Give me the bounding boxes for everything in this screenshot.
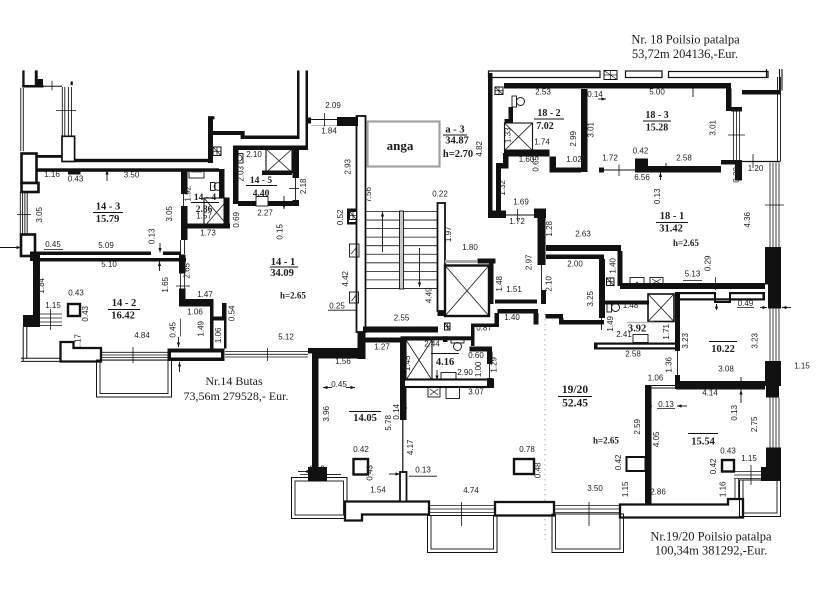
svg-text:2.00: 2.00 [567,259,583,268]
svg-text:0.43: 0.43 [81,305,90,321]
svg-text:1.49: 1.49 [606,315,615,331]
svg-text:4.82: 4.82 [475,140,484,156]
svg-text:2.10: 2.10 [545,275,554,291]
svg-text:0.48: 0.48 [534,462,543,478]
svg-text:14 - 2: 14 - 2 [112,298,137,309]
svg-text:1.16: 1.16 [719,481,728,497]
svg-text:2.93: 2.93 [344,158,353,174]
svg-text:3.25: 3.25 [586,290,595,306]
svg-text:3.05: 3.05 [35,206,44,222]
svg-text:1.57: 1.57 [196,211,212,220]
svg-text:0.29: 0.29 [704,255,713,271]
svg-text:1.45: 1.45 [403,355,412,371]
svg-text:0.87: 0.87 [476,323,492,332]
svg-text:15.79: 15.79 [96,214,120,225]
svg-text:15.28: 15.28 [646,123,669,134]
svg-text:1.47: 1.47 [197,290,213,299]
svg-text:4.36: 4.36 [743,211,752,227]
svg-text:14 - 3: 14 - 3 [96,202,121,213]
svg-text:Nr.19/20 Poilsio patalpa: Nr.19/20 Poilsio patalpa [650,530,772,544]
svg-text:1.71: 1.71 [662,323,671,339]
svg-text:14 - 5: 14 - 5 [250,176,272,186]
svg-text:1.80: 1.80 [462,243,478,252]
svg-text:0.13: 0.13 [730,404,739,420]
svg-text:18 - 1: 18 - 1 [660,211,685,222]
svg-text:1.32: 1.32 [498,179,507,195]
svg-text:anga: anga [387,138,414,153]
svg-text:1.49: 1.49 [197,320,206,336]
svg-text:14.05: 14.05 [353,413,377,424]
svg-text:1.56: 1.56 [335,357,351,366]
svg-text:1.84: 1.84 [321,126,337,135]
svg-text:1.16: 1.16 [44,170,60,179]
svg-text:1.84: 1.84 [37,277,46,293]
svg-text:0.13: 0.13 [415,465,431,474]
svg-text:0.54: 0.54 [228,305,237,321]
svg-text:2.59: 2.59 [633,418,642,434]
svg-text:14 - 1: 14 - 1 [271,257,296,268]
svg-text:1.20: 1.20 [748,164,764,173]
svg-text:2.65: 2.65 [183,262,192,278]
svg-text:1.00: 1.00 [474,361,483,377]
svg-text:4.84: 4.84 [134,331,150,340]
svg-text:1.48: 1.48 [495,275,504,291]
svg-text:4.17: 4.17 [406,439,415,455]
svg-text:2.53: 2.53 [535,87,551,96]
svg-text:10.22: 10.22 [711,344,735,355]
svg-text:4.16: 4.16 [436,357,454,368]
svg-text:2.10: 2.10 [246,150,262,159]
svg-text:0.42: 0.42 [633,146,649,155]
svg-text:5.09: 5.09 [98,241,114,250]
svg-text:0.13: 0.13 [309,464,325,473]
svg-text:0.60: 0.60 [468,351,484,360]
svg-text:53,72m 204136,-Eur.: 53,72m 204136,-Eur. [632,47,738,61]
svg-text:15.54: 15.54 [691,437,715,448]
svg-text:0.78: 0.78 [519,445,535,454]
svg-text:3.07: 3.07 [468,387,484,396]
svg-text:34.87: 34.87 [445,136,469,147]
svg-text:1.74: 1.74 [534,137,550,146]
svg-text:h=2.65: h=2.65 [593,436,619,446]
svg-text:1.48: 1.48 [623,301,639,310]
svg-text:1.36: 1.36 [665,356,674,372]
svg-text:3.50: 3.50 [124,170,140,179]
svg-text:4.42: 4.42 [341,270,350,286]
svg-text:3.08: 3.08 [718,364,734,373]
svg-text:2.99: 2.99 [569,130,578,146]
svg-text:1.97: 1.97 [444,226,453,242]
svg-text:0.13: 0.13 [148,228,157,244]
svg-text:4.14: 4.14 [702,388,718,397]
svg-text:1.33: 1.33 [504,127,513,143]
svg-text:Nr.14 Butas: Nr.14 Butas [205,374,263,388]
svg-text:100,34m 381292,-Eur.: 100,34m 381292,-Eur. [655,544,768,558]
svg-text:0.13: 0.13 [653,188,662,204]
svg-text:3.01: 3.01 [709,119,718,135]
svg-text:2.58: 2.58 [676,153,692,162]
svg-text:2.09: 2.09 [325,101,341,110]
svg-text:5.13: 5.13 [685,269,701,278]
svg-text:2.41: 2.41 [616,330,632,339]
svg-text:1.40: 1.40 [504,313,520,322]
svg-text:3.05: 3.05 [165,205,174,221]
svg-text:6.56: 6.56 [634,173,650,182]
svg-text:31.42: 31.42 [659,224,683,235]
svg-text:1.92: 1.92 [184,185,193,201]
svg-text:1.72: 1.72 [602,153,618,162]
svg-text:1.15: 1.15 [45,301,61,310]
svg-text:a - 3: a - 3 [445,125,464,136]
svg-text:1.73: 1.73 [200,228,216,237]
svg-text:0.65: 0.65 [532,155,541,171]
svg-text:14 - 4: 14 - 4 [194,193,216,203]
svg-text:2.75: 2.75 [750,416,759,432]
svg-text:0.69: 0.69 [232,211,241,227]
svg-text:h=2.70: h=2.70 [443,149,473,160]
svg-text:0.43: 0.43 [68,174,84,183]
svg-text:2.90: 2.90 [457,368,473,377]
svg-text:0.42: 0.42 [614,454,623,470]
svg-text:0.43: 0.43 [720,446,736,455]
svg-text:1.06: 1.06 [648,373,664,382]
svg-text:0.13: 0.13 [658,400,674,409]
svg-text:2.03: 2.03 [237,165,246,181]
svg-text:0.45: 0.45 [45,240,61,249]
svg-text:0.25: 0.25 [329,302,345,311]
svg-text:3.01: 3.01 [587,121,596,137]
svg-text:0.43: 0.43 [366,464,375,480]
svg-text:4.05: 4.05 [652,431,661,447]
svg-text:1.51: 1.51 [506,285,522,294]
svg-text:0.14: 0.14 [587,90,603,99]
svg-text:5.00: 5.00 [649,87,665,96]
svg-text:19/20: 19/20 [562,384,588,396]
svg-text:2.58: 2.58 [625,349,641,358]
svg-text:0.15: 0.15 [276,223,285,239]
svg-text:34.09: 34.09 [270,268,294,279]
svg-text:3.23: 3.23 [751,332,760,348]
svg-text:0.45: 0.45 [169,321,178,337]
svg-text:2.63: 2.63 [575,229,591,238]
svg-text:18 - 3: 18 - 3 [645,110,668,121]
svg-text:1.27: 1.27 [374,342,390,351]
svg-text:4.40: 4.40 [253,189,270,199]
svg-text:2.97: 2.97 [525,254,534,270]
svg-text:3.50: 3.50 [587,484,603,493]
svg-text:2.86: 2.86 [650,487,666,496]
svg-text:h=2.65: h=2.65 [673,238,699,248]
svg-text:3.23: 3.23 [681,332,690,348]
svg-text:2.18: 2.18 [299,178,308,194]
svg-text:Nr. 18 Poilsio patalpa: Nr. 18 Poilsio patalpa [631,33,740,47]
svg-text:1.69: 1.69 [513,197,529,206]
svg-text:0.42: 0.42 [709,458,718,474]
svg-text:0.22: 0.22 [432,189,448,198]
svg-text:2.55: 2.55 [394,313,410,322]
svg-text:4.49: 4.49 [425,287,434,303]
svg-text:2.44: 2.44 [424,339,440,348]
svg-text:1.06: 1.06 [214,327,223,343]
svg-text:4.74: 4.74 [463,486,479,495]
svg-text:18 - 2: 18 - 2 [537,108,560,119]
svg-text:1.15: 1.15 [794,361,810,370]
svg-text:1.15: 1.15 [621,481,630,497]
svg-text:73,56m 279528,- Eur.: 73,56m 279528,- Eur. [184,389,289,403]
svg-text:0.39: 0.39 [732,166,741,182]
svg-text:1.28: 1.28 [545,220,554,236]
svg-text:0.14: 0.14 [392,403,401,419]
svg-text:16.42: 16.42 [111,311,135,322]
svg-text:1.54: 1.54 [370,485,386,494]
svg-text:1.02: 1.02 [566,155,582,164]
svg-text:5.12: 5.12 [278,332,294,341]
svg-text:1.15: 1.15 [741,454,757,463]
svg-text:7.02: 7.02 [536,121,554,132]
svg-text:0.45: 0.45 [331,380,347,389]
svg-text:0.43: 0.43 [68,288,84,297]
svg-text:0.52: 0.52 [336,209,345,225]
svg-text:1.65: 1.65 [161,276,170,292]
svg-text:2.27: 2.27 [257,208,273,217]
svg-text:1.06: 1.06 [187,307,203,316]
svg-text:52.45: 52.45 [562,398,588,410]
svg-text:7.56: 7.56 [364,186,373,202]
svg-text:3.96: 3.96 [322,405,331,421]
svg-text:1.72: 1.72 [509,217,525,226]
svg-text:0.42: 0.42 [353,445,369,454]
svg-text:h=2.65: h=2.65 [280,291,306,301]
svg-text:1.40: 1.40 [609,257,618,273]
